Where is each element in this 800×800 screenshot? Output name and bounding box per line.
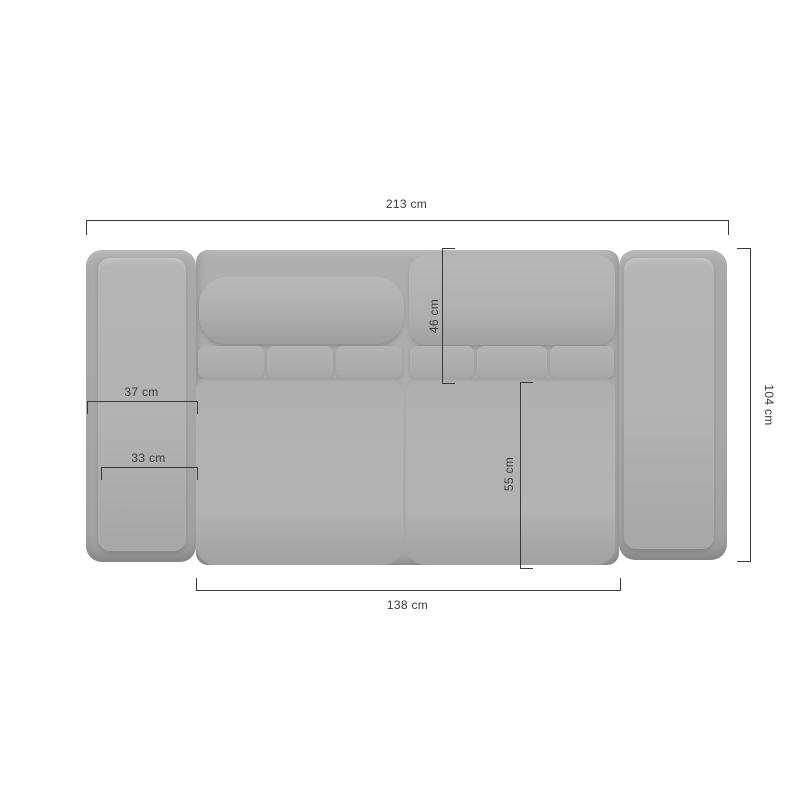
sofa-tuft-cell	[198, 346, 264, 378]
dim-backrest-depth-label: 46 cm	[426, 286, 442, 346]
dim-overall-width-line	[86, 220, 729, 235]
sofa-right-armrest	[619, 250, 727, 560]
dim-seat-depth-label: 55 cm	[501, 444, 517, 504]
dim-backrest-depth-line	[442, 248, 455, 384]
dim-armrest-cushion-width-label: 33 cm	[101, 450, 196, 466]
sofa-body	[196, 250, 619, 565]
dim-seat-width-line	[196, 578, 621, 591]
sofa-tuft-cell	[267, 346, 333, 378]
dim-armrest-width-line	[87, 401, 198, 414]
sofa-right-armrest-cushion	[624, 258, 714, 549]
dimension-diagram: 213 cm 104 cm 138 cm 46 cm 55 cm 37 cm 3…	[0, 0, 800, 800]
dim-overall-depth-line	[737, 248, 751, 562]
sofa-seat-cushion-left	[196, 378, 403, 565]
dim-armrest-cushion-width-line	[101, 467, 198, 480]
sofa-tuft-cell	[550, 346, 614, 378]
sofa-tuft-cell	[477, 346, 547, 378]
sofa-tuft-cell	[336, 346, 402, 378]
dim-overall-width-label: 213 cm	[86, 196, 727, 212]
dim-armrest-width-label: 37 cm	[87, 384, 196, 400]
dim-overall-depth-label: 104 cm	[761, 375, 777, 435]
sofa-bolster-pillow	[199, 277, 404, 344]
dim-seat-depth-line	[520, 382, 533, 569]
dim-seat-width-label: 138 cm	[196, 597, 619, 613]
